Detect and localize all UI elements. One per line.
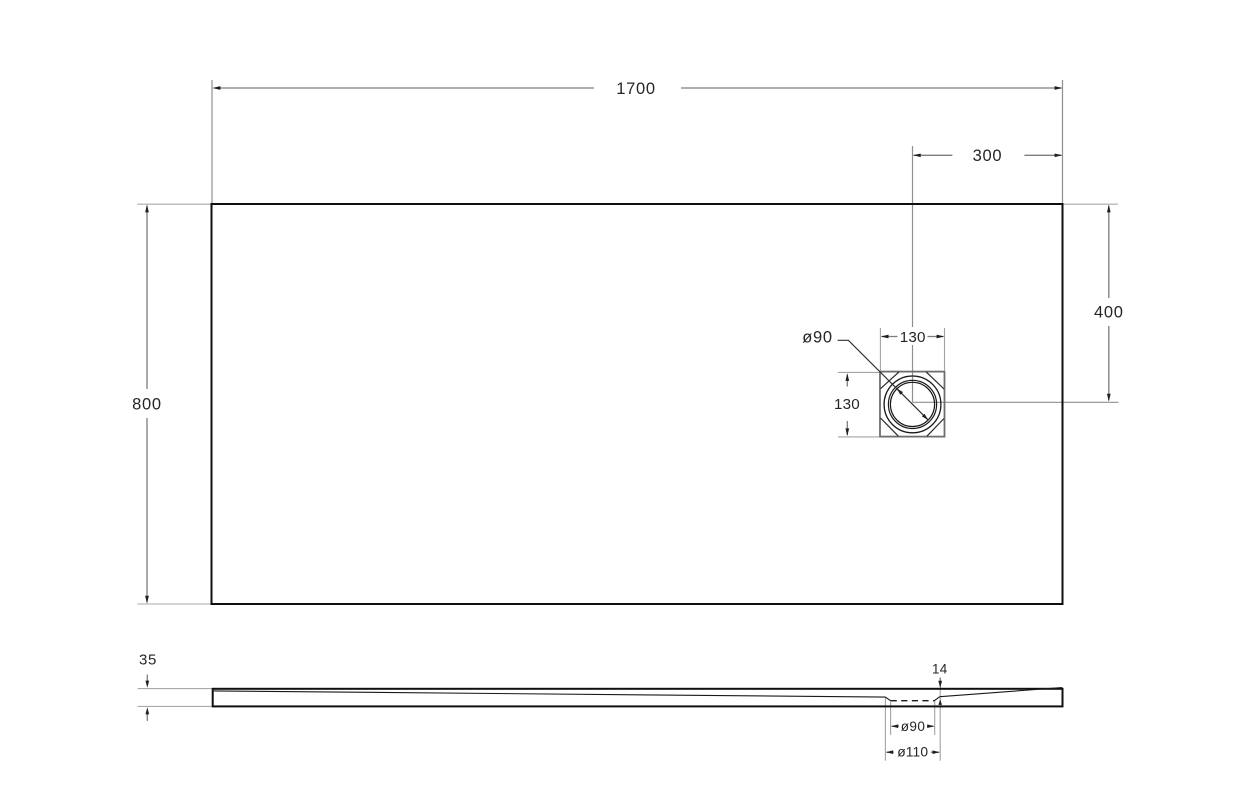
svg-text:ø90: ø90 bbox=[802, 328, 833, 346]
svg-text:130: 130 bbox=[900, 329, 926, 346]
svg-text:800: 800 bbox=[132, 395, 162, 413]
svg-text:ø90: ø90 bbox=[901, 719, 926, 734]
svg-text:14: 14 bbox=[932, 662, 948, 677]
svg-text:35: 35 bbox=[139, 651, 157, 668]
svg-text:400: 400 bbox=[1094, 303, 1124, 321]
svg-text:ø110: ø110 bbox=[897, 745, 928, 760]
svg-text:300: 300 bbox=[973, 147, 1003, 165]
svg-text:130: 130 bbox=[834, 396, 860, 413]
svg-text:1700: 1700 bbox=[616, 80, 656, 98]
